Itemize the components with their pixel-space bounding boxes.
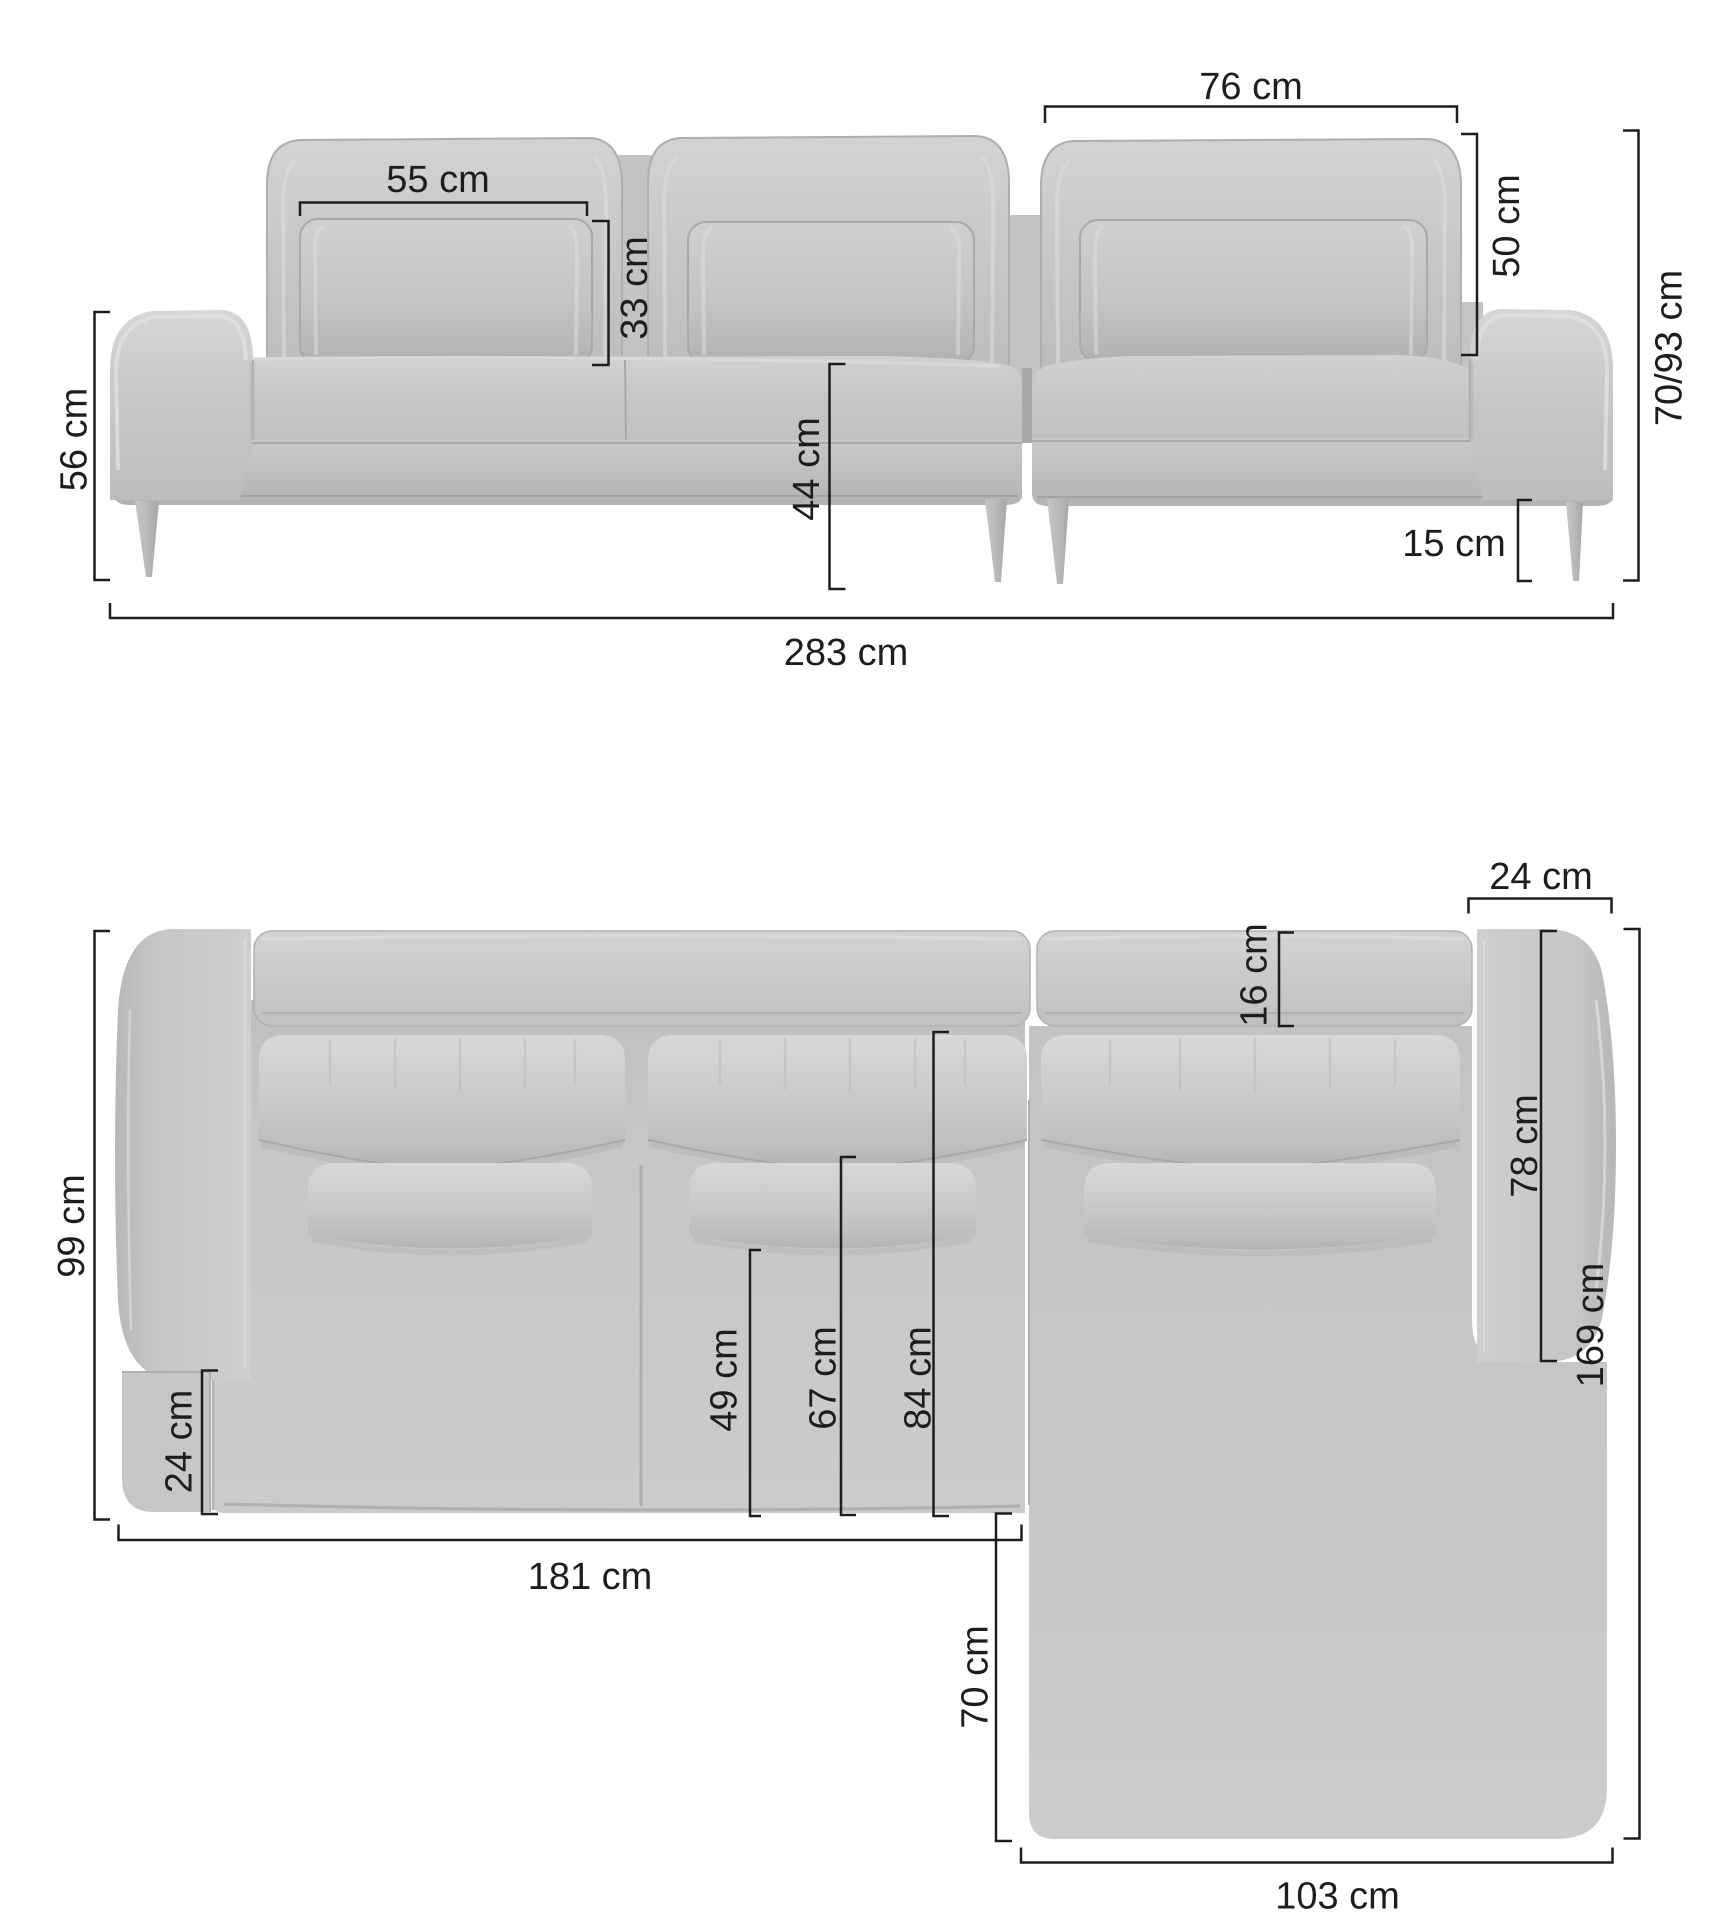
- svg-text:283 cm: 283 cm: [784, 632, 909, 674]
- svg-text:78 cm: 78 cm: [1504, 1094, 1546, 1197]
- svg-text:70/93 cm: 70/93 cm: [1649, 270, 1691, 426]
- svg-text:67 cm: 67 cm: [803, 1326, 845, 1429]
- svg-text:33 cm: 33 cm: [614, 236, 656, 339]
- svg-text:181 cm: 181 cm: [528, 1556, 653, 1598]
- svg-text:84 cm: 84 cm: [898, 1326, 940, 1429]
- svg-text:169 cm: 169 cm: [1570, 1263, 1612, 1388]
- svg-text:76 cm: 76 cm: [1199, 66, 1302, 108]
- svg-text:70 cm: 70 cm: [955, 1625, 997, 1728]
- svg-text:55 cm: 55 cm: [386, 159, 489, 201]
- svg-text:50 cm: 50 cm: [1486, 174, 1528, 277]
- svg-text:15 cm: 15 cm: [1402, 523, 1505, 565]
- svg-text:103 cm: 103 cm: [1275, 1876, 1400, 1918]
- svg-text:56 cm: 56 cm: [54, 388, 96, 491]
- svg-text:24 cm: 24 cm: [159, 1390, 201, 1493]
- svg-text:99 cm: 99 cm: [51, 1174, 93, 1277]
- svg-text:44 cm: 44 cm: [786, 417, 828, 520]
- svg-text:24 cm: 24 cm: [1489, 856, 1592, 898]
- svg-text:49 cm: 49 cm: [704, 1328, 746, 1431]
- svg-text:16 cm: 16 cm: [1234, 923, 1276, 1026]
